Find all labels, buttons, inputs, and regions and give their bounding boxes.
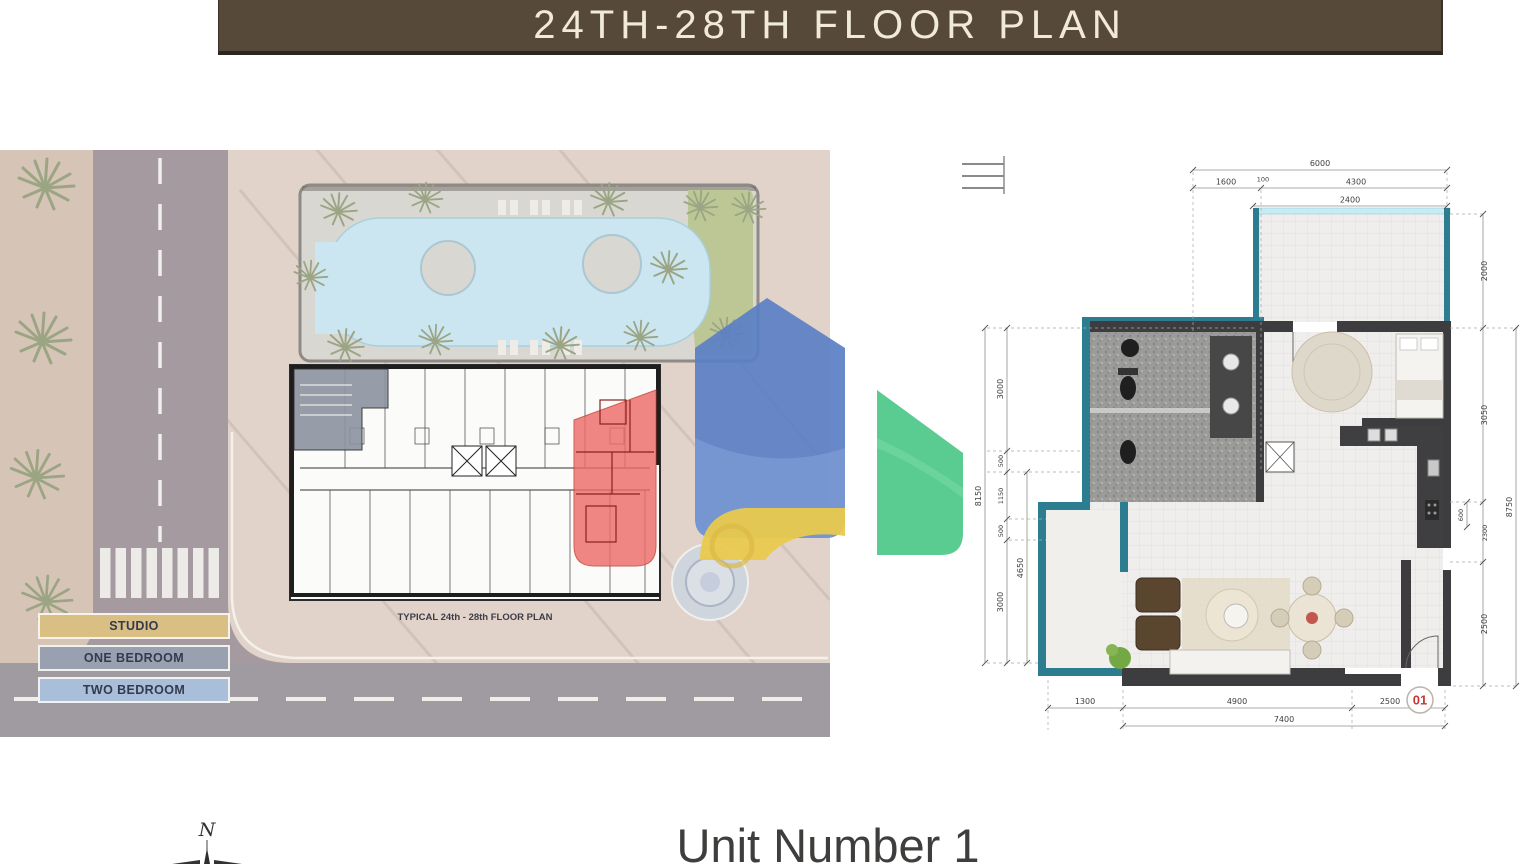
pool-deck [294, 183, 765, 362]
unit-badge-text: 01 [1413, 693, 1427, 708]
compass-north-label: N [198, 819, 217, 841]
unit-plan-drawing: 6000 1600 100 4300 2400 3000 500 1150 50… [960, 150, 1536, 740]
legend-label-one-bedroom: ONE BEDROOM [84, 651, 184, 665]
dim-left-inner: 4650 [1016, 558, 1025, 578]
legend-label-studio: STUDIO [109, 619, 159, 633]
dim-left-2: 500 [997, 455, 1005, 467]
pool [328, 218, 710, 346]
site-plan-panel: TYPICAL 24th - 28th FLOOR PLAN STUDIO ON… [0, 150, 830, 737]
dim-bottom-total: 7400 [1274, 715, 1294, 724]
dim-bottom-1: 1300 [1075, 697, 1095, 706]
page: 24TH-28TH FLOOR PLAN [0, 0, 1536, 864]
lap-pool [315, 242, 351, 334]
legend-item-studio: STUDIO [38, 613, 230, 639]
dim-top-4: 2400 [1340, 196, 1360, 205]
dim-top-1: 1600 [1216, 178, 1236, 187]
compass-north-point [204, 848, 210, 864]
dim-right-5: 2500 [1480, 614, 1489, 634]
driveway-circle [672, 544, 748, 620]
compass-west-arm [172, 860, 200, 864]
dim-right-1: 2000 [1480, 261, 1489, 281]
watermark-green-shape [877, 390, 963, 555]
legend-item-one-bedroom: ONE BEDROOM [38, 645, 230, 671]
dim-right-2: 3050 [1480, 405, 1489, 425]
balcony-glass [1255, 208, 1450, 214]
pool-island [421, 241, 475, 295]
dim-right-total: 8750 [1505, 497, 1514, 517]
dim-right-3: 600 [1457, 509, 1465, 521]
dim-top-total: 6000 [1310, 159, 1330, 168]
dim-top-3: 4300 [1346, 178, 1366, 187]
dim-left-5: 3000 [996, 592, 1005, 612]
dim-left-1: 3000 [996, 379, 1005, 399]
legend-label-two-bedroom: TWO BEDROOM [83, 683, 185, 697]
unit-plan-panel: 6000 1600 100 4300 2400 3000 500 1150 50… [960, 150, 1536, 740]
unit-title: Unit Number 1 [590, 821, 1066, 864]
balcony-floor [1259, 214, 1444, 322]
dim-top-2: 100 [1257, 176, 1269, 184]
compass-east-arm [214, 860, 242, 864]
pool-island [583, 235, 641, 293]
legend-item-two-bedroom: TWO BEDROOM [38, 677, 230, 703]
compass-rose: N [150, 818, 270, 864]
dim-right-4: 2300 [1481, 525, 1489, 542]
page-title: 24TH-28TH FLOOR PLAN [218, 0, 1443, 55]
dim-left-total: 8150 [974, 486, 983, 506]
dim-left-3: 1150 [997, 488, 1005, 505]
unit-number-badge: 01 [1407, 687, 1433, 713]
overlay-caption: TYPICAL 24th - 28th FLOOR PLAN [397, 612, 552, 623]
dim-bottom-3: 2500 [1380, 697, 1400, 706]
typical-floor-overlay: TYPICAL 24th - 28th FLOOR PLAN [290, 365, 660, 623]
dim-bottom-2: 4900 [1227, 697, 1247, 706]
window-gap [1443, 548, 1451, 570]
dim-left-4: 500 [997, 525, 1005, 537]
level-marker-icon [962, 156, 1004, 194]
